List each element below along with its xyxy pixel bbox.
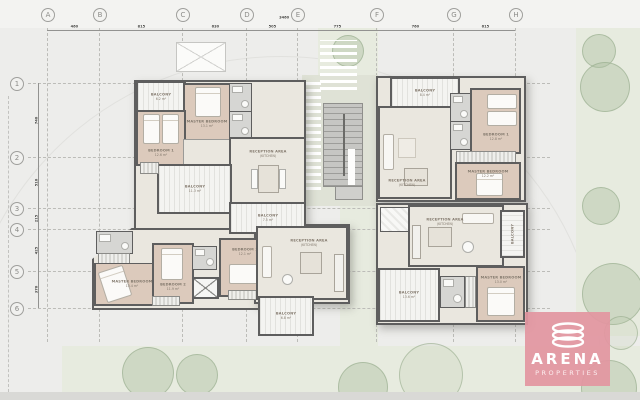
dining-table	[404, 168, 428, 186]
room-master-bedroom: MASTER BEDROOM13.0 m²	[476, 266, 525, 322]
wardrobe	[152, 296, 180, 306]
room-bathroom	[229, 111, 252, 139]
staircase	[323, 103, 363, 187]
entry-landing	[380, 207, 409, 232]
room-bathroom	[450, 93, 471, 122]
elevator	[192, 277, 219, 299]
room-hallway	[183, 139, 230, 167]
sink	[453, 96, 463, 103]
bed	[195, 87, 221, 117]
grid-bubble-B: B	[93, 8, 107, 22]
dim-seg-34: 215	[34, 215, 38, 223]
dim-seg-12: 740	[34, 117, 38, 125]
grid-bubble-5: 5	[10, 265, 24, 279]
room-balcony: BALCONY6.8 m²	[258, 296, 314, 336]
pergola-louvres	[320, 40, 357, 90]
skylight	[176, 42, 226, 72]
site-boundary-line	[8, 96, 9, 392]
bed	[487, 111, 517, 126]
bed	[487, 94, 517, 109]
room-balcony: BALCONY	[500, 210, 525, 258]
sink	[443, 279, 454, 287]
dim-seg-gh: 615	[482, 24, 490, 28]
sofa	[262, 246, 272, 278]
room-bathroom	[440, 276, 465, 308]
chairs	[251, 169, 258, 189]
bed	[487, 287, 515, 316]
tree-icon	[582, 187, 620, 225]
grid-bubble-H: H	[509, 8, 523, 22]
dim-total: 3460	[279, 15, 289, 19]
sofa	[462, 213, 494, 224]
tree-icon	[580, 62, 630, 112]
room-master-bedroom: MASTER BEDROOM13.1 m²	[183, 83, 231, 141]
room-bedroom-2: BEDROOM 211.9 m²	[152, 243, 194, 304]
stair-run	[348, 149, 355, 185]
grid-bubble-1: 1	[10, 77, 24, 91]
dim-seg-cd: 630	[212, 24, 220, 28]
toilet	[241, 127, 249, 135]
dim-seg-23: 510	[34, 179, 38, 187]
grid-bubble-4: 4	[10, 223, 24, 237]
room-balcony: BALCONY6.2 m²	[136, 81, 186, 113]
dim-seg-56: 370	[34, 286, 38, 294]
floor-plan-canvas: A B C D E F G H 1 2 3 4 5 6 3460 460 815…	[0, 0, 640, 400]
sink	[453, 124, 463, 131]
grid-bubble-A: A	[41, 8, 55, 22]
arena-logo: ARENA PROPERTIES	[525, 312, 610, 386]
road-strip	[0, 392, 640, 400]
dining-table	[300, 252, 322, 274]
grid-line-A	[47, 28, 48, 342]
room-bathroom	[450, 121, 471, 150]
room-reception: RECEPTION AREA(KITCHEN)	[229, 137, 306, 205]
rug	[398, 138, 416, 158]
dim-seg-bc: 815	[138, 24, 146, 28]
room-reception: RECEPTION AREA(KITCHEN)	[378, 106, 452, 199]
sofa	[383, 134, 394, 170]
toilet	[460, 110, 468, 118]
toilet	[460, 138, 468, 146]
grid-bubble-3: 3	[10, 202, 24, 216]
toilet	[241, 100, 249, 108]
dimension-line-top	[47, 30, 515, 31]
room-master-bedroom: MASTER BEDROOM12.2 m²	[455, 162, 521, 200]
stair-rail	[343, 114, 345, 176]
grid-bubble-6: 6	[10, 302, 24, 316]
dim-seg-ef: 775	[334, 24, 342, 28]
grid-bubble-2: 2	[10, 151, 24, 165]
room-bedroom-1: BEDROOM 112.8 m²	[470, 88, 521, 154]
bed	[162, 114, 179, 144]
sink	[232, 86, 243, 93]
room-balcony: BALCONY13.6 m²	[378, 268, 440, 322]
logo-brand-text: ARENA	[531, 350, 604, 368]
dining-table	[258, 165, 279, 193]
grid-bubble-F: F	[370, 8, 384, 22]
tree-icon	[176, 354, 218, 396]
stair-landing	[335, 186, 363, 200]
bed	[476, 173, 503, 196]
room-reception: RECEPTION AREA(KITCHEN)	[256, 226, 348, 300]
grid-bubble-G: G	[447, 8, 461, 22]
room-bedroom-1: BEDROOM 112.6 m²	[136, 110, 186, 166]
bed	[98, 265, 133, 303]
grid-bubble-C: C	[176, 8, 190, 22]
wardrobe	[140, 162, 159, 174]
kitchen-counter	[334, 254, 344, 292]
toilet	[206, 258, 214, 266]
dim-seg-de: 505	[269, 24, 277, 28]
room-bathroom	[96, 231, 133, 254]
toilet	[453, 294, 462, 303]
kitchen-counter	[412, 225, 421, 259]
bed	[161, 248, 183, 280]
dim-seg-fg: 760	[412, 24, 420, 28]
dining-table	[428, 227, 452, 247]
dim-seg-ab: 460	[71, 24, 79, 28]
toilet	[121, 242, 129, 250]
grid-bubble-E: E	[291, 8, 305, 22]
armchair	[462, 241, 474, 253]
sink	[195, 249, 205, 256]
chairs	[279, 169, 286, 189]
sink	[232, 114, 243, 121]
grid-bubble-D: D	[240, 8, 254, 22]
room-master-bedroom: MASTER BEDROOM13.4 m²	[94, 263, 154, 306]
room-bathroom	[192, 246, 217, 270]
logo-tagline-text: PROPERTIES	[535, 369, 600, 377]
dim-seg-45: 425	[34, 247, 38, 255]
bed	[143, 114, 160, 144]
room-balcony: BALCONY11.3 m²	[157, 164, 232, 214]
room-bathroom	[229, 83, 252, 112]
bathtub	[99, 234, 111, 242]
wardrobe	[465, 276, 476, 308]
armchair	[282, 274, 293, 285]
stadium-icon	[546, 322, 590, 348]
room-reception: RECEPTION AREA(KITCHEN)	[408, 205, 504, 267]
